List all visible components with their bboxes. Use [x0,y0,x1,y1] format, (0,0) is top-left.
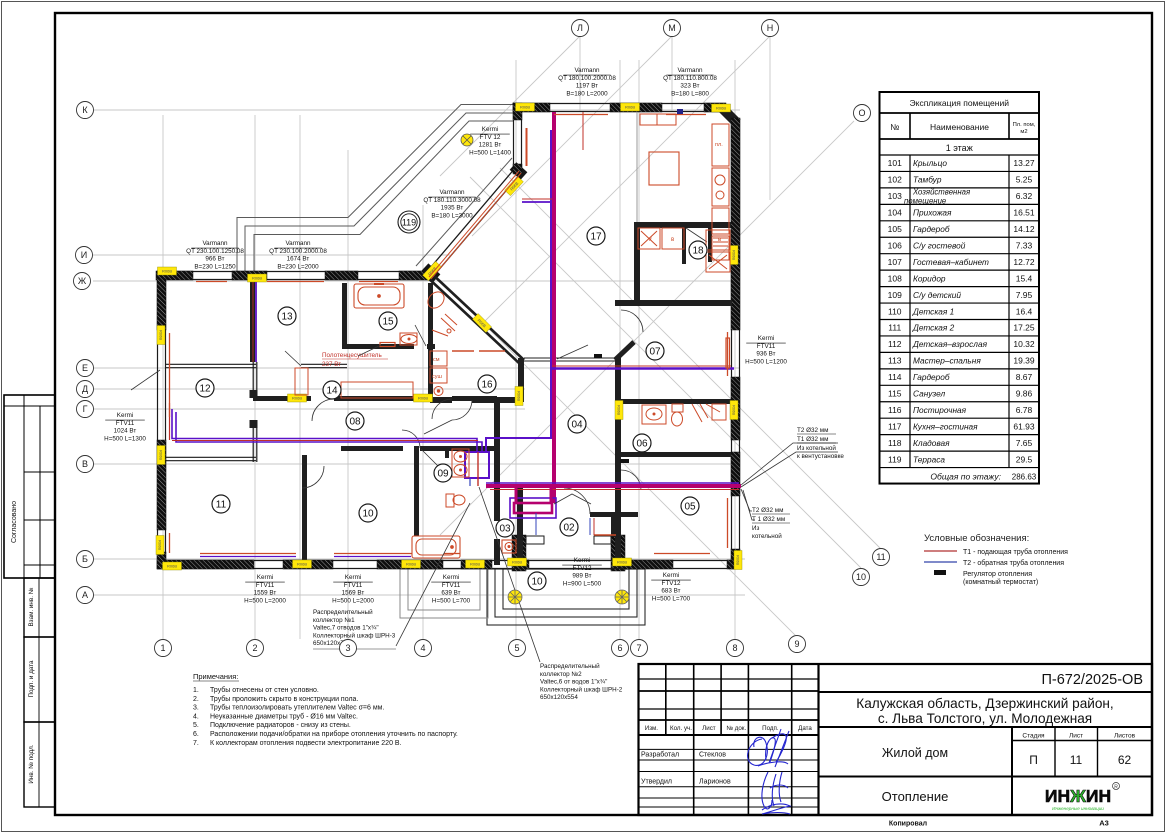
svg-text:12: 12 [199,384,211,395]
svg-text:111: 111 [888,323,901,333]
svg-text:639 Вт: 639 Вт [441,590,460,597]
svg-text:Т2 - обратная труба отопления: Т2 - обратная труба отопления [963,559,1064,567]
svg-text:Примечания:: Примечания: [193,672,238,681]
svg-text:Коллекторный шкаф ШРН-2: Коллекторный шкаф ШРН-2 [540,685,623,693]
svg-text:Пл. пом,: Пл. пом, [1013,122,1036,128]
svg-text:FTV12: FTV12 [573,565,592,572]
svg-text:17.25: 17.25 [1013,323,1035,333]
svg-text:к вентустановке: к вентустановке [797,453,844,460]
svg-text:Постирочная: Постирочная [913,405,967,415]
svg-text:3.: 3. [193,705,199,712]
svg-text:Varmann: Varmann [677,67,703,74]
svg-text:А3: А3 [1099,819,1109,828]
svg-text:105: 105 [888,224,902,234]
svg-text:H=500 L=700: H=500 L=700 [652,595,691,602]
svg-text:1281 Вт: 1281 Вт [479,142,502,149]
svg-text:7.: 7. [193,740,199,747]
svg-text:х: х [649,237,652,243]
svg-text:1559 Вт: 1559 Вт [254,590,277,597]
svg-text:118: 118 [888,438,902,448]
svg-text:R06B: R06B [252,276,262,281]
svg-text:1 этаж: 1 этаж [946,143,973,153]
svg-text:10: 10 [856,572,866,582]
svg-text:323 Вт: 323 Вт [680,83,699,90]
svg-text:09: 09 [437,469,449,480]
svg-text:936 Вт: 936 Вт [756,351,775,358]
svg-text:12.72: 12.72 [1013,257,1035,267]
svg-text:Подключение радиаторов - снизу: Подключение радиаторов - снизу из стены. [210,722,351,729]
svg-text:Т 1 Ø32 мм: Т 1 Ø32 мм [752,516,785,523]
svg-text:коллектор №1: коллектор №1 [313,617,355,624]
svg-text:Экспликация помещений: Экспликация помещений [910,98,1010,108]
svg-text:R06B: R06B [616,405,621,415]
svg-text:Kermi: Kermi [482,126,498,133]
svg-text:6.32: 6.32 [1016,191,1033,201]
svg-text:07: 07 [649,347,661,358]
svg-text:Varmann: Varmann [285,240,311,247]
svg-text:Д: Д [82,384,88,394]
svg-text:Калужская область, Дзержинский: Калужская область, Дзержинский район, [856,696,1113,711]
svg-text:Подп. и дата: Подп. и дата [28,660,35,698]
svg-text:107: 107 [888,257,902,267]
svg-text:5: 5 [514,643,519,653]
svg-text:15: 15 [382,317,394,328]
svg-text:11: 11 [1070,753,1083,767]
svg-text:О: О [858,108,865,118]
svg-text:R06B: R06B [406,562,416,567]
svg-text:П: П [1029,753,1038,767]
svg-text:10: 10 [362,509,374,520]
svg-text:18: 18 [692,246,704,257]
svg-text:Тамбур: Тамбур [913,175,942,185]
svg-text:113: 113 [888,356,902,366]
svg-text:6: 6 [617,643,622,653]
svg-text:Детская 1: Детская 1 [912,306,954,316]
svg-text:106: 106 [888,240,902,250]
svg-text:FTV11: FTV11 [116,420,135,427]
svg-text:Хозяйственная: Хозяйственная [912,188,971,197]
svg-text:11: 11 [876,552,885,562]
svg-text:119: 119 [888,454,902,464]
svg-text:QT 230.100.2000.08: QT 230.100.2000.08 [269,248,327,255]
svg-text:117: 117 [888,421,902,431]
svg-text:Гардероб: Гардероб [913,372,950,382]
svg-text:Жилой дом: Жилой дом [882,746,948,760]
svg-text:116: 116 [888,405,902,415]
svg-text:104: 104 [888,208,902,218]
svg-text:1935 Вт: 1935 Вт [441,205,464,212]
svg-text:112: 112 [888,339,902,349]
svg-text:Valtec,7 отводов 1"х¾": Valtec,7 отводов 1"х¾" [313,625,379,632]
svg-text:B=180 L=3000: B=180 L=3000 [431,212,473,219]
svg-text:Листов: Листов [1114,733,1136,740]
svg-text:H=500 L=1400: H=500 L=1400 [469,149,511,156]
svg-text:7.95: 7.95 [1016,290,1033,300]
svg-text:Санузел: Санузел [913,389,946,399]
svg-text:14: 14 [326,386,338,397]
svg-text:B=230 L=2000: B=230 L=2000 [277,263,319,270]
svg-text:1197 Вт: 1197 Вт [576,83,598,90]
svg-text:R06B: R06B [617,560,627,565]
svg-text:ИНЖИН: ИНЖИН [1045,786,1111,806]
svg-text:М: М [668,23,676,33]
svg-text:FTV 12: FTV 12 [480,134,501,141]
svg-text:Изм.: Изм. [645,725,659,732]
svg-text:Коридор: Коридор [913,273,946,283]
svg-text:Н: Н [767,23,774,33]
svg-text:Т2 Ø32 мм: Т2 Ø32 мм [752,507,783,514]
svg-text:Коллекторный шкаф ШРН-3: Коллекторный шкаф ШРН-3 [313,631,396,639]
svg-text:110: 110 [888,306,902,316]
svg-text:4: 4 [420,643,425,653]
svg-text:Varmann: Varmann [202,240,228,247]
svg-text:Kermi: Kermi [345,574,361,581]
svg-text:15.4: 15.4 [1016,273,1033,283]
svg-text:114: 114 [888,372,902,382]
svg-text:Трубы отнесены от стен условно: Трубы отнесены от стен условно. [210,686,319,694]
svg-text:Т1 Ø32 мм: Т1 Ø32 мм [797,436,828,443]
svg-text:Е: Е [82,363,88,373]
svg-text:Л: Л [577,23,583,33]
svg-text:62: 62 [1118,753,1132,767]
svg-text:Полотенцесушитель: Полотенцесушитель [322,352,382,359]
svg-text:683 Вт: 683 Вт [661,588,680,595]
svg-text:П-672/2025-ОВ: П-672/2025-ОВ [1041,672,1143,688]
svg-text:QT 180.110.3000.08: QT 180.110.3000.08 [423,197,481,204]
svg-text:Трубы теплоизолировать утеплит: Трубы теплоизолировать утеплителем Valte… [210,704,384,712]
svg-text:6.: 6. [193,731,199,738]
svg-text:Общая по этажу:: Общая по этажу: [930,472,1001,482]
svg-text:16.51: 16.51 [1013,208,1035,218]
svg-text:11: 11 [216,500,227,511]
svg-text:989 Вт: 989 Вт [572,573,591,580]
svg-text:05: 05 [684,502,696,513]
svg-text:котельной: котельной [752,532,782,540]
svg-text:2.: 2. [193,696,199,703]
svg-text:17: 17 [590,232,602,243]
svg-text:16.4: 16.4 [1016,306,1033,316]
svg-text:FTV12: FTV12 [662,580,681,587]
svg-text:см: см [433,357,440,363]
svg-text:Мастер–спальня: Мастер–спальня [913,356,981,366]
svg-text:1.: 1. [193,687,199,694]
svg-text:Прихожая: Прихожая [913,208,952,218]
svg-text:3: 3 [345,643,350,653]
svg-text:119: 119 [402,218,416,228]
svg-text:H=500 L=700: H=500 L=700 [432,597,471,604]
svg-text:10: 10 [531,577,543,588]
svg-text:R06B: R06B [716,106,726,111]
svg-text:Инв. № подл.: Инв. № подл. [28,744,35,783]
svg-text:R06B: R06B [167,564,177,569]
svg-text:Г: Г [83,404,88,414]
svg-text:(комнатный термостат): (комнатный термостат) [963,578,1038,586]
svg-text:В: В [82,459,88,469]
svg-text:Ж: Ж [78,276,87,286]
svg-text:№: № [890,122,899,132]
svg-text:№ док.: № док. [726,725,746,732]
svg-text:Kermi: Kermi [443,574,459,581]
svg-text:в: в [718,237,721,243]
svg-text:R06B: R06B [162,269,172,274]
svg-text:650х120х554: 650х120х554 [540,694,578,701]
svg-text:115: 115 [888,389,902,399]
svg-text:109: 109 [888,290,902,300]
svg-text:суш: суш [432,374,443,380]
svg-text:Отопление: Отопление [882,789,949,804]
svg-text:H=900 L=500: H=900 L=500 [563,580,602,587]
svg-text:19.39: 19.39 [1013,356,1035,366]
svg-text:06: 06 [636,439,648,450]
svg-text:Стадия: Стадия [1022,733,1045,740]
svg-text:Регулятор отопления: Регулятор отопления [963,571,1032,578]
svg-text:Kermi: Kermi [117,412,133,419]
svg-text:Varmann: Varmann [574,67,600,74]
svg-text:2: 2 [252,643,257,653]
svg-text:QT 180.100.2000.08: QT 180.100.2000.08 [558,75,616,82]
svg-text:16: 16 [481,380,493,391]
svg-text:Kermi: Kermi [758,335,774,342]
svg-text:Из: Из [752,525,760,532]
svg-text:8.67: 8.67 [1016,372,1033,382]
svg-text:Терраса: Терраса [913,454,945,464]
svg-text:С/у детский: С/у детский [913,290,961,300]
svg-text:237 Вт: 237 Вт [322,361,341,368]
svg-text:Ларионов: Ларионов [699,779,731,786]
svg-text:Valtec,6 от водов 1"х¾": Valtec,6 от водов 1"х¾" [540,679,607,686]
svg-text:С/у гостевой: С/у гостевой [913,240,966,250]
svg-text:R06B: R06B [516,391,521,401]
svg-text:7.33: 7.33 [1016,240,1033,250]
svg-text:коллектор №2: коллектор №2 [540,671,582,678]
svg-text:Varmann: Varmann [439,189,465,196]
svg-text:Распределительный: Распределительный [540,662,600,670]
svg-text:Трубы проложить скрыто в конст: Трубы проложить скрыто в конструкции пол… [210,695,358,703]
svg-text:QT 230.100.1250.08: QT 230.100.1250.08 [186,248,244,255]
svg-text:м2: м2 [1020,129,1027,135]
svg-text:Инженерные инновации: Инженерные инновации [1052,806,1104,811]
svg-text:Распределительный: Распределительный [313,608,373,616]
svg-text:с. Льва Толстого, ул. Молодежн: с. Льва Толстого, ул. Молодежная [878,711,1092,726]
svg-text:К коллекторам отопления подвес: К коллекторам отопления подвести электро… [210,740,402,747]
svg-text:H=500 L=1200: H=500 L=1200 [745,358,787,365]
svg-text:108: 108 [888,273,902,283]
svg-text:6.78: 6.78 [1016,405,1033,415]
svg-text:13: 13 [281,312,293,323]
svg-text:14.12: 14.12 [1013,224,1035,234]
svg-text:Подп.: Подп. [762,725,779,732]
svg-text:R06B: R06B [731,250,736,260]
svg-text:R06B: R06B [297,562,307,567]
svg-text:286.63: 286.63 [1012,473,1037,482]
svg-text:Kermi: Kermi [663,572,679,579]
svg-text:9: 9 [794,639,799,649]
svg-text:H=500 L=2000: H=500 L=2000 [332,597,374,604]
svg-text:R: R [1114,784,1118,790]
svg-text:03: 03 [499,524,511,535]
svg-text:103: 103 [888,191,902,201]
svg-text:H=500 L=2000: H=500 L=2000 [244,597,286,604]
svg-text:R06B: R06B [625,105,635,110]
svg-text:пл.: пл. [715,142,723,148]
svg-text:R06B: R06B [292,396,302,401]
svg-text:9.86: 9.86 [1016,389,1033,399]
svg-text:Разработал: Разработал [641,751,679,759]
svg-text:Из котельной: Из котельной [797,444,836,452]
svg-text:R06B: R06B [735,555,740,565]
svg-text:Утвердил: Утвердил [641,779,672,786]
svg-text:4.: 4. [193,713,199,720]
svg-text:1024 Вт: 1024 Вт [114,428,137,435]
svg-text:R06B: R06B [731,405,736,415]
svg-text:H=500 L=1300: H=500 L=1300 [104,435,146,442]
svg-text:1569 Вт: 1569 Вт [342,590,365,597]
svg-text:7: 7 [636,643,641,653]
svg-text:Условные обозначения:: Условные обозначения: [924,533,1029,544]
svg-text:Дата: Дата [798,725,812,732]
svg-text:B=180 L=800: B=180 L=800 [671,90,709,97]
svg-text:Кладовая: Кладовая [913,438,950,448]
svg-text:10.32: 10.32 [1013,339,1035,349]
svg-text:B=180 L=2000: B=180 L=2000 [566,90,608,97]
svg-text:13.27: 13.27 [1013,158,1035,168]
svg-text:966 Вт: 966 Вт [205,256,224,263]
svg-text:R06B: R06B [520,105,530,110]
svg-text:Kermi: Kermi [574,557,590,564]
svg-text:61.93: 61.93 [1013,421,1035,431]
svg-text:5.25: 5.25 [1016,175,1033,185]
svg-text:Наименование: Наименование [930,122,989,132]
svg-text:102: 102 [888,175,902,185]
svg-text:помещение: помещение [904,197,947,206]
svg-text:FTV11: FTV11 [757,343,776,350]
svg-text:04: 04 [571,420,583,431]
svg-text:R06B: R06B [470,562,480,567]
svg-text:101: 101 [888,158,902,168]
svg-text:Детская 2: Детская 2 [912,323,955,333]
svg-text:R06B: R06B [158,450,163,460]
svg-text:в: в [671,237,674,243]
svg-text:Согласовано: Согласовано [11,501,18,543]
svg-text:Лист: Лист [702,725,716,732]
svg-text:5.: 5. [193,722,199,729]
svg-text:1: 1 [160,643,165,653]
svg-text:B=230 L=1250: B=230 L=1250 [194,263,236,270]
svg-text:Детская–взрослая: Детская–взрослая [912,339,988,349]
svg-text:FTV11: FTV11 [256,582,275,589]
svg-text:8: 8 [732,643,737,653]
svg-text:Крыльцо: Крыльцо [913,158,947,168]
svg-text:7.65: 7.65 [1016,438,1033,448]
svg-text:Взам. инв. №: Взам. инв. № [28,587,35,626]
svg-text:QT 180.110.800.08: QT 180.110.800.08 [663,75,717,82]
svg-text:02: 02 [563,523,575,534]
svg-text:Стеклов: Стеклов [699,752,726,759]
svg-text:Гардероб: Гардероб [913,224,950,234]
svg-text:Кухня–гостиная: Кухня–гостиная [913,421,978,431]
svg-text:29.5: 29.5 [1016,454,1033,464]
svg-text:Неуказанные диаметры труб - Ø1: Неуказанные диаметры труб - Ø16 мм Valte… [210,712,358,720]
svg-text:К: К [82,105,88,115]
svg-text:Б: Б [82,554,88,564]
svg-text:Кол. уч.: Кол. уч. [670,725,692,732]
svg-text:R06B: R06B [512,560,522,565]
svg-text:R06B: R06B [418,396,428,401]
svg-text:Расположении подачи/обратки на: Расположении подачи/обратки на приборе о… [210,730,458,738]
svg-text:Гостевая–кабинет: Гостевая–кабинет [913,257,989,267]
svg-text:Копировал: Копировал [889,821,927,828]
svg-text:Т1 - подающая труба отопления: Т1 - подающая труба отопления [963,548,1068,556]
svg-text:А: А [82,590,88,600]
svg-text:Kermi: Kermi [257,574,273,581]
svg-text:FTV11: FTV11 [442,582,461,589]
svg-text:И: И [81,250,87,260]
svg-text:08: 08 [349,417,361,428]
svg-text:1674 Вт: 1674 Вт [287,256,310,263]
svg-text:R06B: R06B [157,540,162,550]
svg-text:Лист: Лист [1069,733,1083,740]
svg-text:FTV11: FTV11 [344,582,363,589]
svg-text:Т2 Ø32 мм: Т2 Ø32 мм [797,427,828,434]
svg-text:R06B: R06B [158,330,163,340]
